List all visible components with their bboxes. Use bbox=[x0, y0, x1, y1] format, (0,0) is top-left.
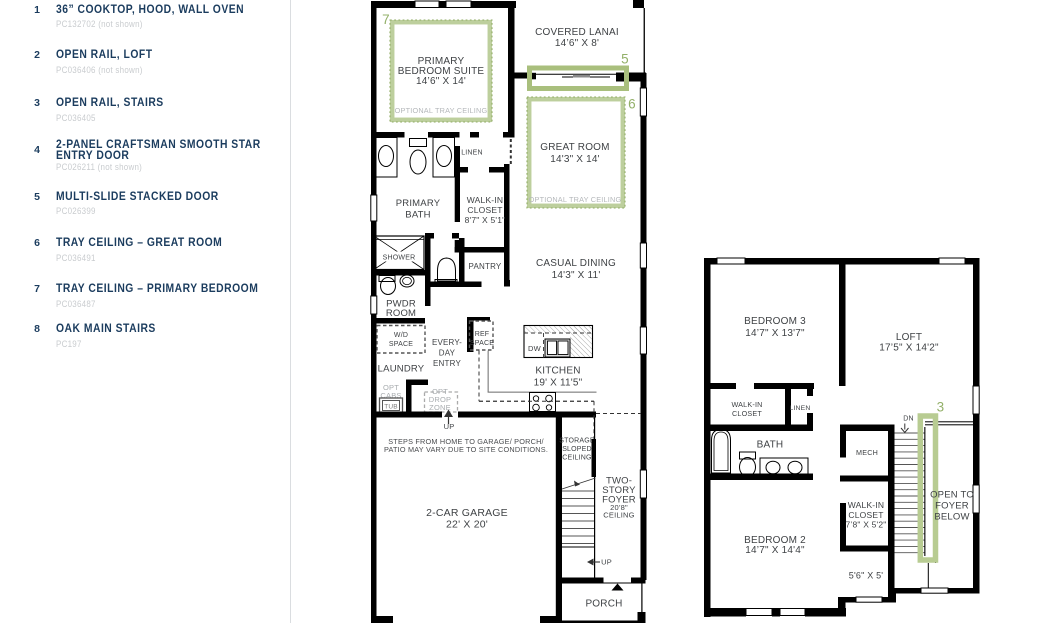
svg-text:6: 6 bbox=[628, 97, 636, 112]
svg-text:LINEN: LINEN bbox=[461, 150, 483, 157]
svg-text:22' X 20': 22' X 20' bbox=[446, 519, 488, 531]
svg-text:2-CAR GARAGE: 2-CAR GARAGE bbox=[426, 507, 508, 519]
svg-text:8'7" X 5'1": 8'7" X 5'1" bbox=[465, 215, 506, 225]
svg-text:SLOPED: SLOPED bbox=[562, 446, 592, 453]
svg-text:W/D: W/D bbox=[394, 332, 408, 339]
svg-text:BEDROOM 3: BEDROOM 3 bbox=[744, 316, 806, 327]
svg-text:SPACE: SPACE bbox=[389, 341, 413, 348]
svg-text:BELOW: BELOW bbox=[934, 512, 969, 523]
svg-text:14’6" X 8': 14’6" X 8' bbox=[555, 38, 599, 49]
svg-text:CASUAL DINING: CASUAL DINING bbox=[536, 258, 616, 269]
svg-text:WALK-IN: WALK-IN bbox=[467, 195, 504, 205]
svg-text:17’5" X 14'2": 17’5" X 14'2" bbox=[879, 343, 939, 354]
svg-text:CEILING: CEILING bbox=[603, 511, 634, 520]
svg-text:DW: DW bbox=[528, 344, 542, 353]
svg-text:14'3" X 11': 14'3" X 11' bbox=[552, 270, 601, 281]
svg-text:WALK-IN: WALK-IN bbox=[731, 400, 762, 409]
svg-text:PATIO MAY VARY DUE TO SITE CON: PATIO MAY VARY DUE TO SITE CONDITIONS. bbox=[384, 445, 548, 454]
svg-text:GREAT ROOM: GREAT ROOM bbox=[540, 142, 609, 153]
svg-text:OPTIONAL TRAY CEILING: OPTIONAL TRAY CEILING bbox=[529, 195, 622, 204]
svg-text:19' X 11'5": 19' X 11'5" bbox=[534, 378, 583, 389]
svg-text:CLOSET: CLOSET bbox=[467, 205, 502, 215]
svg-text:PORCH: PORCH bbox=[585, 599, 622, 610]
svg-text:STORAGE: STORAGE bbox=[559, 438, 595, 445]
svg-text:5: 5 bbox=[621, 52, 629, 67]
svg-text:BATH: BATH bbox=[757, 440, 784, 451]
svg-text:COVERED LANAI: COVERED LANAI bbox=[535, 27, 619, 38]
svg-text:ENTRY: ENTRY bbox=[433, 359, 461, 368]
svg-text:UP: UP bbox=[601, 558, 612, 567]
svg-text:CLOSET: CLOSET bbox=[848, 510, 883, 520]
svg-text:ZONE: ZONE bbox=[429, 403, 451, 412]
svg-text:WALK-IN: WALK-IN bbox=[848, 500, 885, 510]
svg-text:14’7" X 13'7": 14’7" X 13'7" bbox=[745, 328, 805, 339]
svg-text:OPEN TO: OPEN TO bbox=[930, 490, 974, 501]
svg-text:DN: DN bbox=[903, 416, 914, 423]
svg-text:TUB: TUB bbox=[384, 404, 398, 411]
svg-text:ROOM: ROOM bbox=[386, 308, 416, 319]
svg-text:OPTIONAL TRAY CEILING: OPTIONAL TRAY CEILING bbox=[395, 106, 488, 115]
svg-text:EVERY-: EVERY- bbox=[432, 338, 462, 347]
svg-text:LOFT: LOFT bbox=[896, 332, 922, 343]
svg-text:REF: REF bbox=[475, 331, 490, 338]
svg-text:BATH: BATH bbox=[405, 210, 430, 221]
svg-text:LAUNDRY: LAUNDRY bbox=[378, 364, 425, 375]
svg-text:CEILING: CEILING bbox=[562, 455, 591, 462]
svg-text:FOYER: FOYER bbox=[935, 501, 969, 512]
svg-text:PRIMARY: PRIMARY bbox=[396, 198, 441, 209]
svg-text:7’8" X 5'2": 7’8" X 5'2" bbox=[845, 520, 886, 530]
svg-text:CLOSET: CLOSET bbox=[732, 409, 762, 418]
svg-text:SHOWER: SHOWER bbox=[383, 255, 416, 262]
svg-text:PANTRY: PANTRY bbox=[469, 262, 502, 271]
svg-text:SPACE: SPACE bbox=[470, 340, 494, 347]
svg-text:14’6" X 14': 14’6" X 14' bbox=[416, 76, 466, 87]
svg-text:DAY: DAY bbox=[439, 349, 456, 358]
svg-text:14'3" X 14': 14'3" X 14' bbox=[550, 154, 600, 165]
svg-text:MECH: MECH bbox=[856, 448, 878, 457]
svg-text:3: 3 bbox=[937, 400, 945, 415]
svg-text:LINEN: LINEN bbox=[789, 405, 810, 412]
svg-text:7: 7 bbox=[382, 12, 390, 27]
svg-text:14’7" X 14'4": 14’7" X 14'4" bbox=[745, 545, 805, 556]
svg-text:5'6" X 5': 5'6" X 5' bbox=[849, 571, 884, 581]
svg-text:KITCHEN: KITCHEN bbox=[535, 366, 580, 377]
svg-text:UP: UP bbox=[444, 422, 455, 431]
